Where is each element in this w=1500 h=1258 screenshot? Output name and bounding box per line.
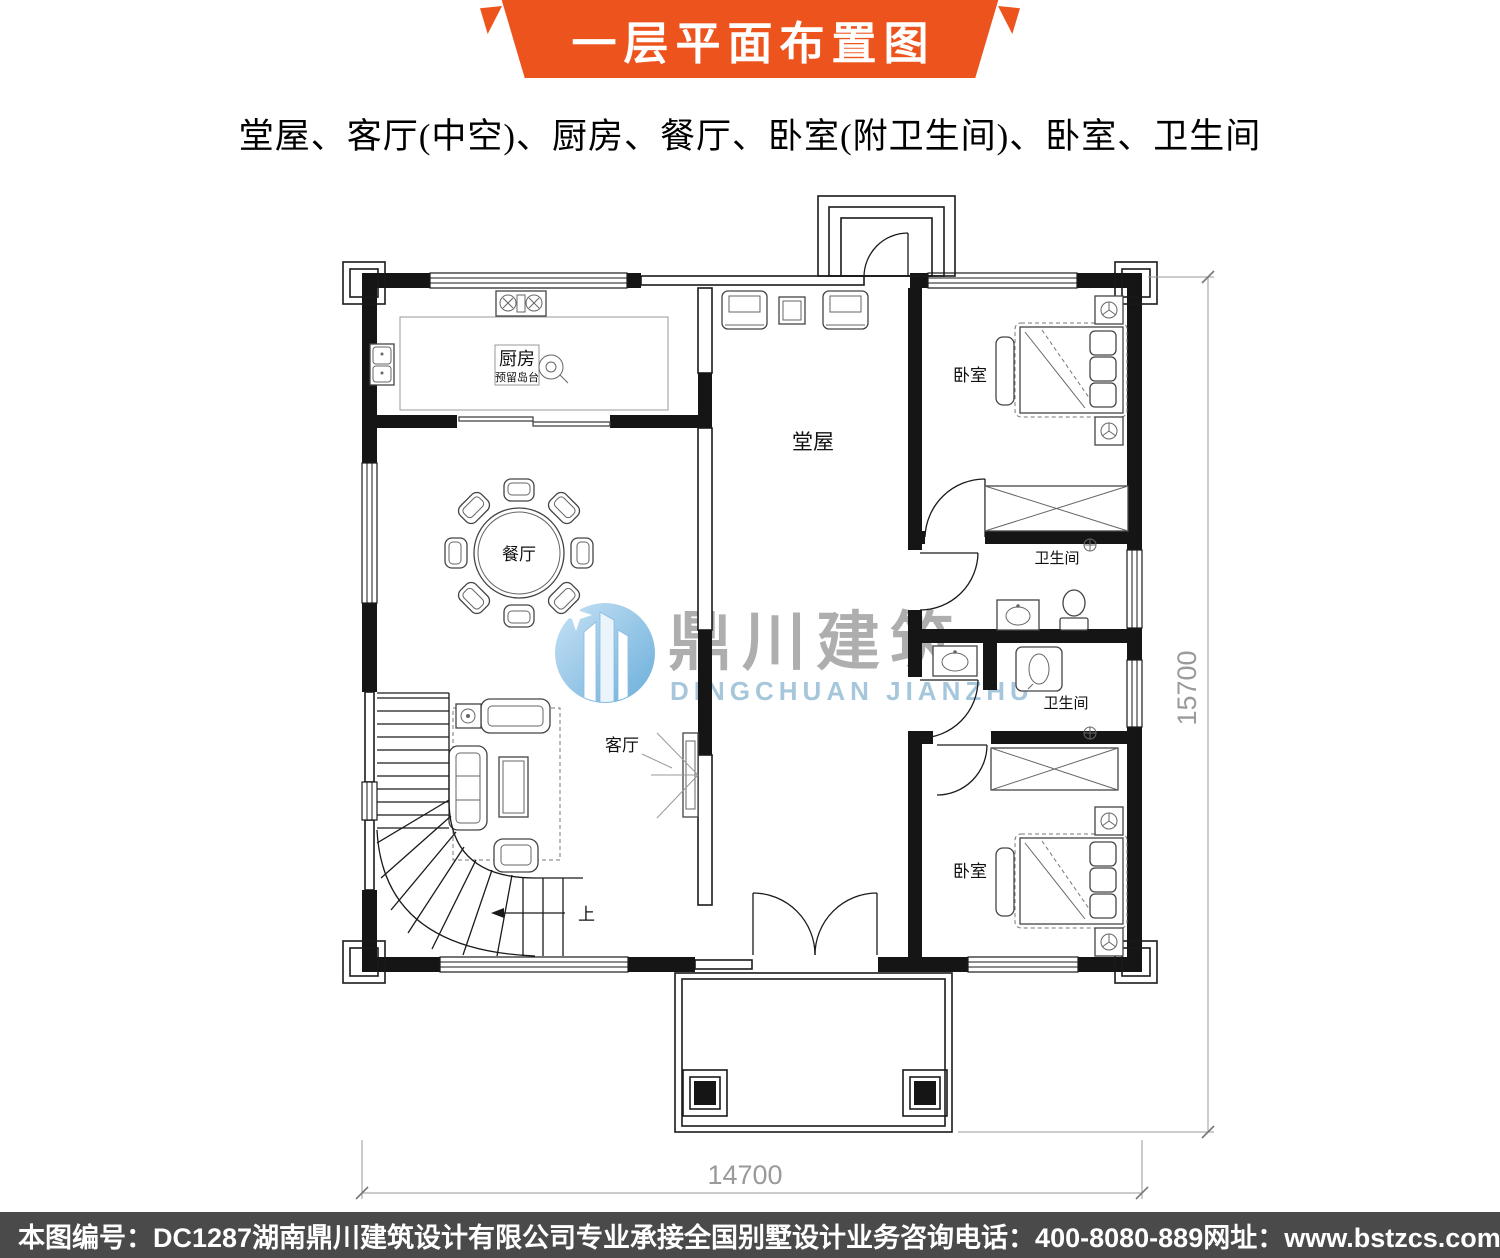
rear-door — [864, 233, 908, 277]
hall-side-table — [779, 297, 805, 324]
rear-porch — [818, 196, 955, 276]
page: 一层平面布置图 堂屋、客厅(中空)、厨房、餐厅、卧室(附卫生间)、卧室、卫生间 … — [0, 0, 1500, 1258]
label-kitchen-note: 预留岛台 — [495, 370, 539, 384]
squat-toilet-icon — [1016, 647, 1062, 691]
vanity-icon — [997, 600, 1039, 630]
entry-double-door — [753, 893, 877, 955]
label-bathroom-top: 卫生间 — [1034, 550, 1079, 567]
toilet-icon — [1060, 590, 1088, 630]
bedroom-top-door — [925, 479, 985, 537]
bathroom-top-door — [920, 553, 978, 610]
kitchen-sink-icon — [370, 344, 394, 385]
floor-drain-icon — [1084, 539, 1096, 551]
nightstand — [1095, 807, 1123, 835]
label-bedroom-top: 卧室 — [953, 366, 987, 385]
tv-icon — [651, 733, 698, 818]
nightstand — [1095, 417, 1123, 445]
window-bedroom-bottom-south — [968, 957, 1078, 972]
coffee-table — [499, 757, 528, 817]
dim-width-label: 14700 — [707, 1160, 782, 1190]
stair-up-arrow — [491, 908, 565, 918]
kitchen-stove-icon — [496, 291, 546, 316]
label-stairs-up: 上 — [578, 905, 595, 924]
nightstand — [1095, 928, 1123, 956]
footer-drawing-number: 本图编号：DC1287 — [18, 1216, 252, 1255]
bedroom-top-furniture — [985, 296, 1128, 531]
armchair — [494, 839, 538, 872]
bed-bench — [996, 337, 1014, 405]
hall-armchair-left — [722, 291, 767, 329]
dimension-bottom: 14700 — [356, 1140, 1148, 1199]
label-living: 客厅 — [605, 736, 639, 755]
label-kitchen: 厨房 — [499, 349, 535, 369]
window-kitchen-north — [430, 273, 627, 288]
footer-website: 网址：www.bstzcs.com — [1203, 1216, 1500, 1255]
label-bedroom-bottom: 卧室 — [953, 862, 987, 881]
label-dining: 餐厅 — [502, 545, 536, 564]
porch-column-left — [683, 1070, 727, 1116]
window-bathroom-top-east — [1127, 550, 1142, 628]
doors — [753, 233, 987, 955]
bedroom-bottom-furniture — [991, 748, 1127, 956]
footer-bar: 本图编号：DC1287 湖南鼎川建筑设计有限公司专业承接全国别墅设计业务 咨询电… — [0, 1212, 1500, 1258]
hall-furniture — [722, 291, 868, 329]
sofa-three-seat — [449, 746, 487, 830]
label-hall: 堂屋 — [792, 430, 834, 454]
loveseat — [481, 699, 550, 733]
nightstand — [1095, 296, 1123, 324]
bedroom-bottom-door — [937, 745, 987, 795]
porch-column-right — [903, 1070, 947, 1116]
watermark-en-text: DINGCHUAN JIANZHU — [670, 676, 1034, 706]
window-stair-west — [362, 782, 377, 820]
footer-company: 湖南鼎川建筑设计有限公司专业承接全国别墅设计业务 — [252, 1216, 900, 1255]
living-room-set — [449, 699, 698, 872]
footer-phone: 咨询电话：400-8080-889 — [900, 1216, 1203, 1255]
window-living-south — [440, 957, 628, 972]
vanity-icon — [933, 646, 977, 676]
kitchen-sliding-door — [459, 417, 533, 421]
flower-stand — [456, 704, 481, 728]
window-dining-west — [362, 463, 377, 603]
wardrobe-bottom — [991, 748, 1118, 790]
window-bathroom-bottom-east — [1127, 660, 1142, 727]
living-label-leader — [642, 754, 672, 768]
floor-drain-icon — [1084, 727, 1096, 739]
hall-armchair-right — [823, 291, 868, 329]
front-porch — [675, 973, 952, 1132]
wardrobe-top — [985, 486, 1128, 531]
floor-plan-canvas: 鼎川建筑 DINGCHUAN JIANZHU — [0, 0, 1500, 1258]
dim-height-label: 15700 — [1172, 650, 1202, 725]
label-bathroom-bottom: 卫生间 — [1043, 695, 1088, 712]
